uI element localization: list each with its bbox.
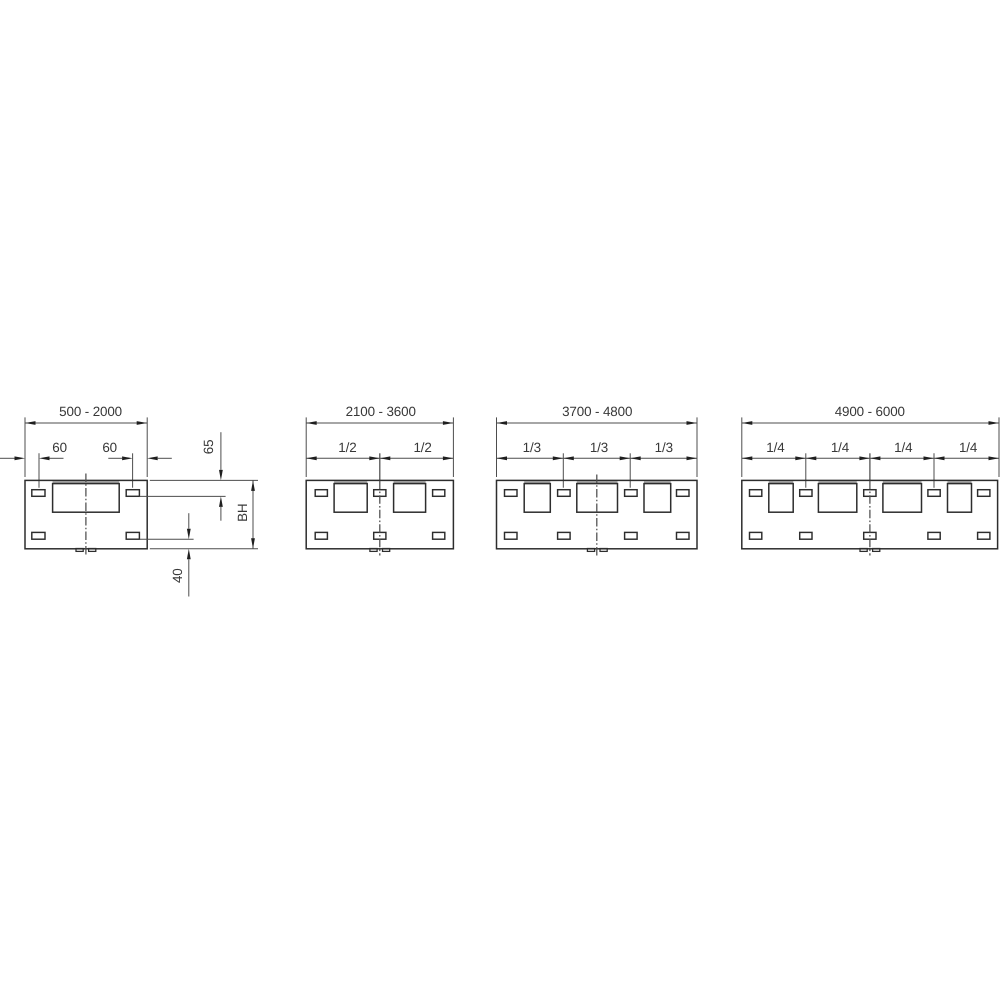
svg-text:1/2: 1/2 <box>338 440 356 455</box>
svg-text:4900 - 6000: 4900 - 6000 <box>835 404 905 419</box>
svg-text:1/3: 1/3 <box>523 440 541 455</box>
svg-text:40: 40 <box>170 568 185 583</box>
svg-text:3700 - 4800: 3700 - 4800 <box>562 404 632 419</box>
svg-text:1/2: 1/2 <box>413 440 431 455</box>
svg-text:1/4: 1/4 <box>831 440 850 455</box>
svg-text:BH: BH <box>235 504 250 522</box>
svg-text:1/4: 1/4 <box>959 440 978 455</box>
svg-text:1/4: 1/4 <box>766 440 785 455</box>
svg-text:500 - 2000: 500 - 2000 <box>59 404 122 419</box>
svg-text:60: 60 <box>52 440 67 455</box>
svg-text:60: 60 <box>102 440 117 455</box>
svg-text:65: 65 <box>201 440 216 455</box>
svg-text:1/3: 1/3 <box>590 440 608 455</box>
svg-text:1/4: 1/4 <box>894 440 913 455</box>
svg-text:2100 - 3600: 2100 - 3600 <box>346 404 416 419</box>
svg-text:1/3: 1/3 <box>655 440 673 455</box>
